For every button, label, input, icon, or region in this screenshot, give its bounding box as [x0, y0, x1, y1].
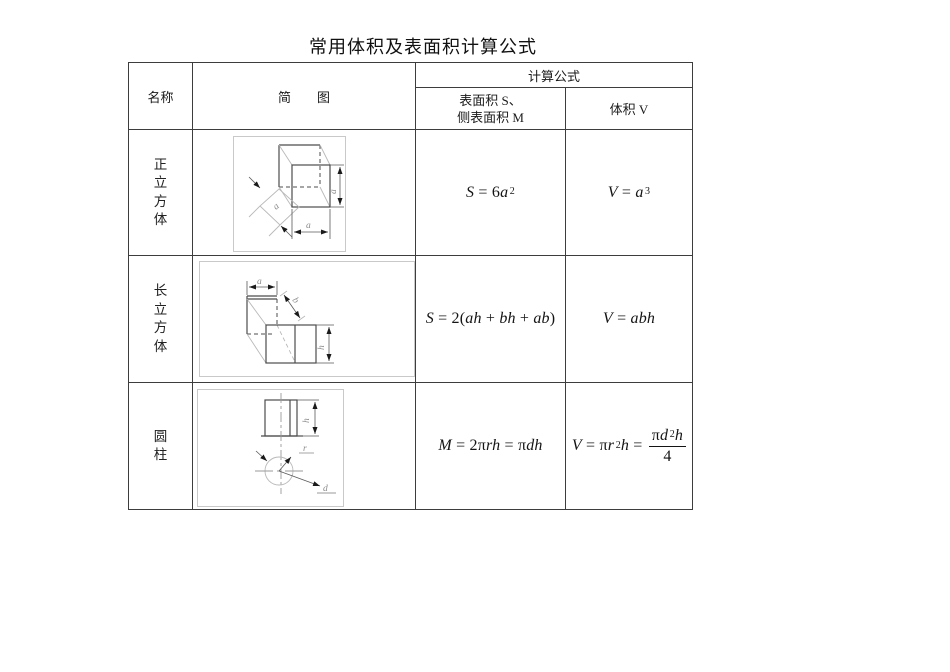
- cylinder-h-label: h: [302, 418, 312, 423]
- surface-formula-cell-cube: S = 6a2: [416, 130, 566, 256]
- header-name: 名称: [129, 63, 193, 130]
- cuboid-figure: [247, 296, 316, 363]
- table-row-cylinder: 圆 柱: [129, 383, 693, 510]
- formula-table: 名称 简 图 计算公式 表面积 S、 侧表面积 M 体积 V 正 立 方 体: [128, 62, 693, 510]
- volume-formula-cell-cylinder: V = πr2h = πd2h4: [566, 383, 693, 510]
- cube-diagram: a a a: [234, 137, 345, 251]
- cube-height-dimension: a: [329, 165, 344, 207]
- header-surface-area: 表面积 S、 侧表面积 M: [416, 88, 566, 130]
- surface-formula-cell-cuboid: S = 2(ah + bh + ab): [416, 256, 566, 383]
- volume-formula-cylinder: V = πr2h = πd2h4: [566, 427, 692, 466]
- cuboid-a-dimension: a: [247, 277, 277, 295]
- diagram-cell-cylinder: h r: [193, 383, 416, 510]
- header-formula-group: 计算公式: [416, 63, 693, 88]
- cylinder-side-view: [261, 400, 303, 436]
- surface-formula-cell-cylinder: M = 2πrh = πdh: [416, 383, 566, 510]
- cube-width-label: a: [306, 221, 311, 231]
- cube-depth-label: a: [272, 201, 282, 212]
- cube-width-dimension: a: [292, 209, 330, 239]
- header-row-top: 名称 简 图 计算公式: [129, 63, 693, 88]
- volume-formula-cell-cube: V = a3: [566, 130, 693, 256]
- row-name-cylinder: 圆 柱: [129, 383, 193, 510]
- page-title: 常用体积及表面积计算公式: [0, 33, 846, 59]
- row-name-cuboid: 长 立 方 体: [129, 256, 193, 383]
- header-volume: 体积 V: [566, 88, 693, 130]
- volume-formula-cuboid: V = abh: [566, 310, 692, 328]
- volume-formula-cube: V = a3: [566, 184, 692, 202]
- cylinder-d-label: d: [323, 484, 328, 494]
- cylinder-diagram: h r: [198, 390, 343, 506]
- cuboid-h-label: h: [317, 345, 327, 350]
- cube-figure: [279, 145, 330, 207]
- document-page: 常用体积及表面积计算公式 名称 简 图 计算公式 表面积 S、 侧表面积 M 体…: [0, 0, 950, 672]
- header-diagram: 简 图: [193, 63, 416, 130]
- row-name-cube: 正 立 方 体: [129, 130, 193, 256]
- volume-formula-cell-cuboid: V = abh: [566, 256, 693, 383]
- cube-diagram-frame: a a a: [233, 136, 346, 252]
- diagram-cell-cuboid: a: [193, 256, 416, 383]
- cuboid-diagram-frame: a: [199, 261, 415, 377]
- table-row-cube: 正 立 方 体: [129, 130, 693, 256]
- cylinder-diagram-frame: h r: [197, 389, 344, 507]
- cuboid-b-label: b: [290, 296, 301, 306]
- cylinder-r-dimension: r: [256, 444, 314, 471]
- cuboid-a-label: a: [257, 277, 262, 287]
- surface-formula-cube: S = 6a2: [416, 184, 565, 202]
- cuboid-h-dimension: h: [316, 325, 334, 363]
- cylinder-r-label: r: [303, 444, 307, 454]
- cuboid-diagram: a: [200, 262, 414, 376]
- cube-height-label: a: [329, 189, 339, 194]
- cylinder-h-dimension: h: [297, 400, 319, 436]
- table-row-cuboid: 长 立 方 体 a: [129, 256, 693, 383]
- surface-formula-cuboid: S = 2(ah + bh + ab): [416, 310, 565, 328]
- surface-formula-cylinder: M = 2πrh = πdh: [416, 437, 565, 455]
- cuboid-b-dimension: b: [280, 291, 305, 321]
- diagram-cell-cube: a a a: [193, 130, 416, 256]
